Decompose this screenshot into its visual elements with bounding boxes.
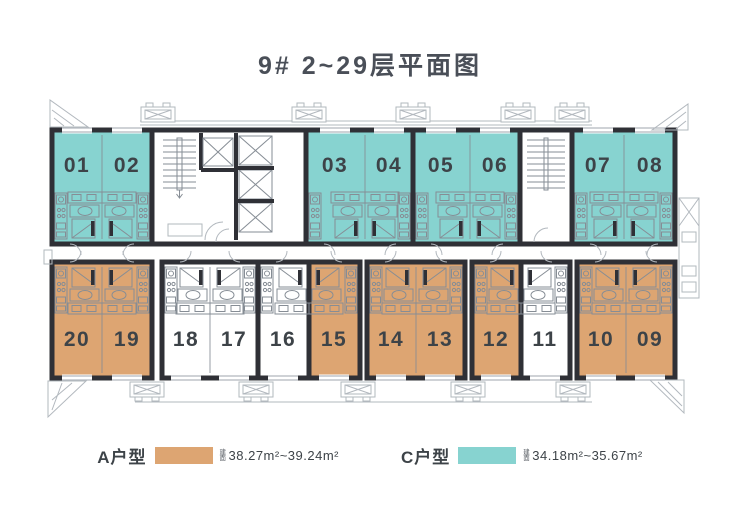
- corridor-door-swings: [70, 244, 658, 262]
- unit-label-11: 11: [532, 328, 557, 351]
- bottom-row-units: [52, 262, 675, 378]
- stairwell-right-area: [520, 130, 572, 244]
- unit-label-04: 04: [376, 154, 402, 177]
- unit-label-05: 05: [428, 154, 454, 177]
- legend-type-c-prefix: 建面: [523, 450, 531, 462]
- unit-label-18: 18: [173, 328, 199, 351]
- unit-label-09: 09: [637, 328, 663, 351]
- unit-label-03: 03: [322, 154, 348, 177]
- unit-label-08: 08: [637, 154, 663, 177]
- unit-label-02: 02: [114, 154, 140, 177]
- legend-item-type-c: C户型 建面 34.18m²~35.67m²: [401, 443, 643, 468]
- unit-03-04-area: [306, 130, 413, 244]
- top-row-units: [52, 130, 675, 244]
- unit-label-10: 10: [588, 328, 614, 351]
- unit-label-06: 06: [482, 154, 508, 177]
- unit-label-14: 14: [378, 328, 404, 351]
- core-area: [152, 130, 306, 244]
- legend-type-a-prefix: 建面: [220, 450, 228, 462]
- legend-item-type-a: A户型 建面 38.27m²~39.24m²: [97, 443, 339, 468]
- legend-type-a-swatch: [155, 447, 213, 464]
- unit-label-07: 07: [585, 154, 611, 177]
- unit-label-19: 19: [114, 328, 140, 351]
- legend-type-a-area: 38.27m²~39.24m²: [229, 448, 339, 463]
- legend-type-c-area: 34.18m²~35.67m²: [532, 448, 642, 463]
- legend-type-c-swatch: [458, 447, 516, 464]
- legend-type-c-name: C户型: [401, 443, 450, 468]
- unit-label-17: 17: [221, 328, 247, 351]
- unit-label-13: 13: [427, 328, 453, 351]
- legend: A户型 建面 38.27m²~39.24m² C户型 建面 34.18m²~35…: [0, 443, 740, 468]
- legend-type-a-name: A户型: [97, 443, 146, 468]
- unit-label-16: 16: [270, 328, 296, 351]
- unit-label-20: 20: [64, 328, 90, 351]
- unit-05-06-area: [413, 130, 520, 244]
- unit-label-01: 01: [64, 154, 90, 177]
- unit-label-12: 12: [483, 328, 509, 351]
- unit-label-15: 15: [321, 328, 347, 351]
